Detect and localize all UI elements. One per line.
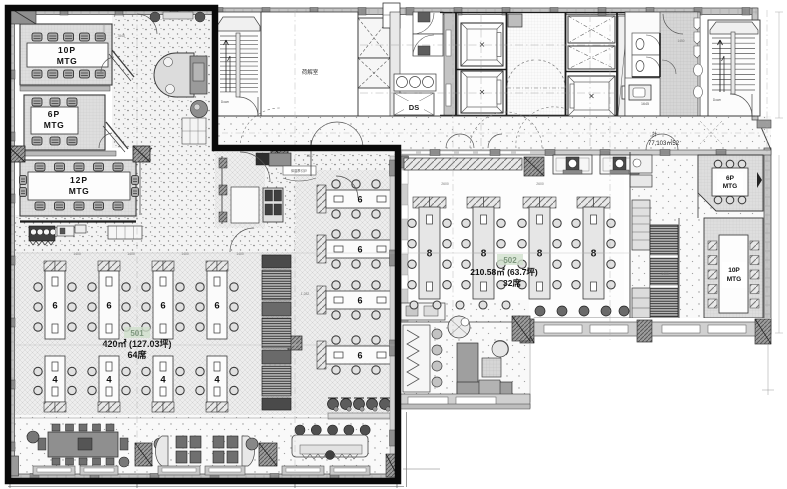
svg-text:6: 6: [357, 351, 362, 361]
svg-text:MTG: MTG: [727, 276, 741, 283]
svg-text:2600: 2600: [441, 182, 449, 186]
svg-text:6: 6: [214, 301, 219, 312]
svg-text:6: 6: [357, 296, 362, 306]
svg-text:4: 4: [214, 375, 220, 386]
svg-text:6P: 6P: [48, 109, 60, 119]
svg-text:1645: 1645: [641, 102, 649, 106]
svg-text:10P: 10P: [58, 45, 76, 55]
svg-text:1450: 1450: [677, 39, 684, 43]
svg-text:502: 502: [503, 256, 517, 265]
svg-text:210.58㎡ (63.7坪): 210.58㎡ (63.7坪): [470, 267, 538, 277]
svg-text:MTG: MTG: [44, 120, 64, 130]
svg-text:MTG: MTG: [57, 56, 77, 66]
svg-text:MTG: MTG: [69, 186, 89, 196]
svg-text:MTG: MTG: [723, 183, 737, 190]
svg-text:6: 6: [160, 301, 165, 312]
svg-text:4: 4: [52, 375, 58, 386]
svg-text:8: 8: [537, 249, 543, 260]
svg-text:体臨季引戸: 体臨季引戸: [291, 168, 307, 173]
svg-text:荷解室: 荷解室: [302, 68, 319, 76]
svg-text:4: 4: [106, 375, 112, 386]
svg-text:1,282: 1,282: [301, 292, 310, 296]
svg-text:8: 8: [591, 249, 597, 260]
svg-text:2600: 2600: [536, 182, 544, 186]
svg-text:計: 計: [652, 131, 657, 138]
svg-text:32席: 32席: [503, 278, 521, 288]
svg-text:12P: 12P: [70, 175, 88, 185]
svg-text:Down: Down: [713, 98, 721, 102]
svg-text:501: 501: [130, 329, 144, 338]
svg-text:6: 6: [52, 301, 57, 312]
svg-text:6: 6: [106, 301, 111, 312]
svg-text:1400: 1400: [127, 252, 135, 256]
svg-text:8: 8: [481, 249, 487, 260]
svg-text:6P: 6P: [726, 175, 735, 182]
svg-text:1400: 1400: [73, 252, 81, 256]
svg-text:8: 8: [427, 249, 433, 260]
svg-text:DS: DS: [409, 103, 419, 112]
svg-text:7848: 7848: [117, 34, 125, 38]
svg-text:1400: 1400: [181, 252, 189, 256]
svg-text:4: 4: [160, 375, 166, 386]
svg-text:Down: Down: [221, 100, 229, 104]
svg-text:10P: 10P: [728, 267, 740, 274]
svg-text:77,103㎡52: 77,103㎡52: [648, 139, 680, 147]
svg-text:1400: 1400: [236, 252, 244, 256]
svg-text:1847: 1847: [306, 154, 314, 158]
svg-text:1400: 1400: [661, 272, 669, 276]
